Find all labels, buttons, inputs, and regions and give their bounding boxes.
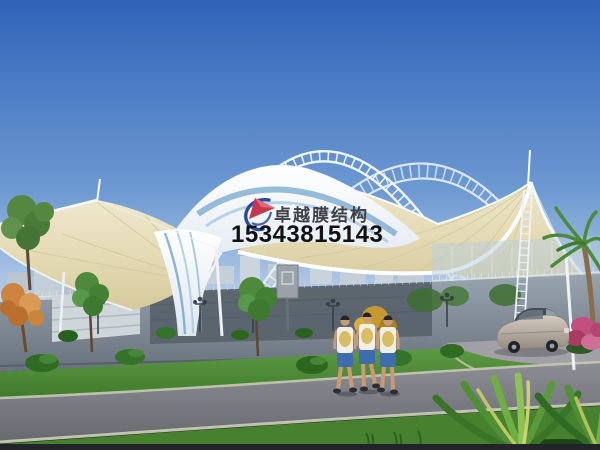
- scene-canvas: [0, 0, 600, 450]
- architectural-rendering: 卓越膜结构 15343815143: [0, 0, 600, 450]
- background-tree: [407, 288, 443, 312]
- bottom-bar: [0, 444, 600, 450]
- car-headlight: [564, 328, 569, 333]
